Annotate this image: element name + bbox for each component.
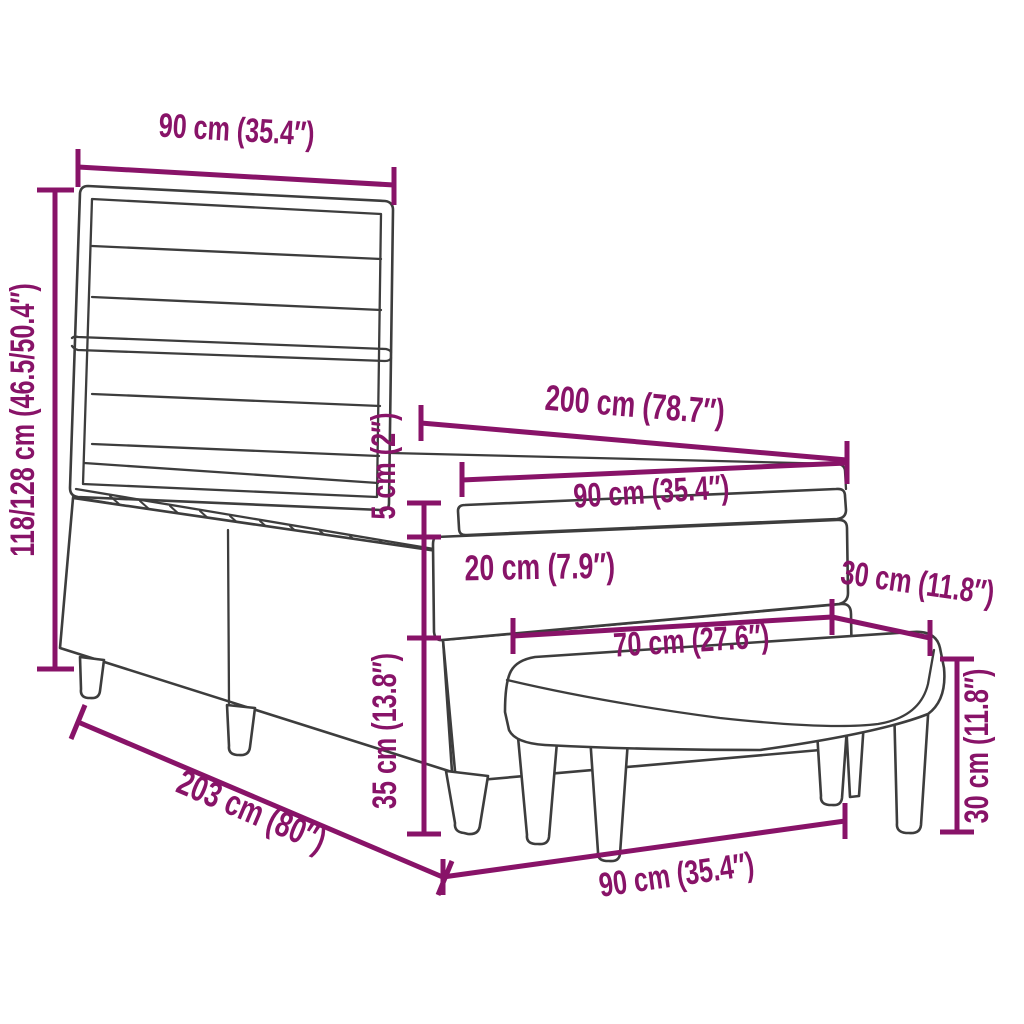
dim-label-bench-height: 30 cm (11.8″) (958, 669, 996, 824)
bed-leg-1 (80, 657, 104, 698)
bed-base-side-seam (228, 530, 229, 703)
diagram-canvas: 90 cm (35.4″) 118/128 cm (46.5/50.4″) 20… (0, 0, 1024, 1024)
headboard (70, 186, 393, 510)
dim-label-headboard-width: 90 cm (35.4″) (158, 107, 316, 153)
dim-label-mattress-thickness: 20 cm (7.9″) (464, 545, 615, 589)
dim-label-base-height: 35 cm (13.8″) (366, 653, 404, 809)
dim-label-overall-length: 203 cm (80″) (171, 761, 332, 860)
bench-leg-back-left (590, 736, 628, 861)
dim-label-bed-length: 200 cm (78.7″) (544, 377, 727, 433)
bed-leg-2 (227, 705, 255, 755)
bench-drawing (505, 632, 944, 861)
dim-label-topper-thickness: 5 cm (2″) (365, 412, 403, 519)
dim-label-overall-height: 118/128 cm (46.5/50.4″) (4, 283, 42, 556)
bed-leg-3 (446, 771, 488, 834)
furniture-dimension-diagram: 90 cm (35.4″) 118/128 cm (46.5/50.4″) 20… (0, 0, 1024, 1024)
dim-label-bench-depth: 30 cm (11.8″) (838, 554, 996, 613)
dim-bench-height: 30 cm (11.8″) (940, 659, 996, 832)
dim-bed-width: 90 cm (35.4″) (443, 803, 845, 905)
